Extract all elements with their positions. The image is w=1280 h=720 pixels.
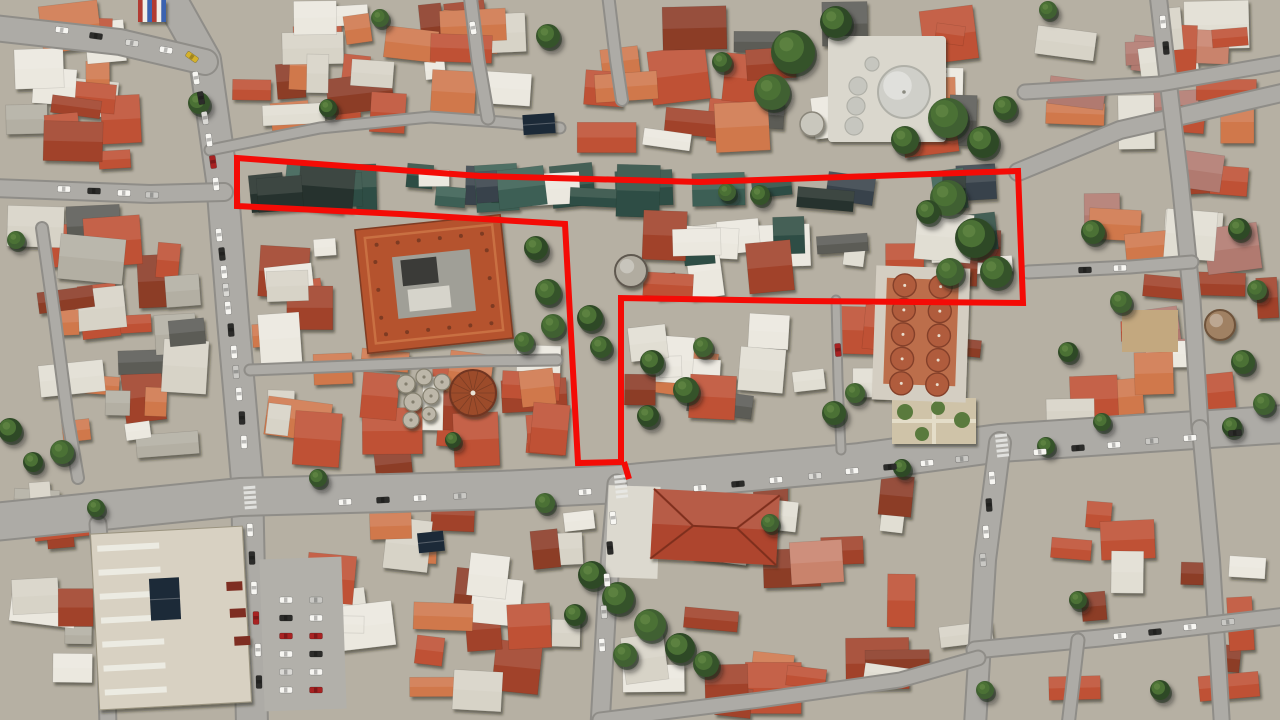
car [280,651,293,657]
building [563,510,595,532]
building [507,603,552,650]
building [65,626,92,644]
small-dome [849,77,867,95]
car [1183,623,1197,630]
car [310,687,323,693]
car [1078,267,1091,273]
car [413,495,426,502]
car [1159,15,1166,28]
car [1113,632,1127,639]
car [280,669,293,675]
car [808,472,821,479]
car [606,541,613,554]
car [845,467,858,474]
car [338,499,351,506]
building [413,602,473,631]
car [1113,265,1126,271]
car [1221,618,1235,625]
car [986,498,993,511]
parking-lot [259,557,346,712]
car [251,581,257,594]
car [310,597,323,603]
car [769,476,782,483]
car [310,633,323,639]
building [370,512,412,539]
car [241,435,247,448]
building [737,346,786,393]
turbe-dome [800,112,824,136]
car [601,605,608,618]
building [53,653,93,682]
car [280,615,293,621]
building [155,242,181,279]
car [249,551,255,564]
car [280,633,293,639]
car [145,192,158,198]
car [1107,442,1120,449]
car [1162,41,1169,54]
building [570,187,619,207]
car [231,345,238,358]
building [58,589,93,627]
car [453,493,466,500]
building [887,574,915,627]
building [297,163,356,212]
han-courtyard-building [355,215,513,354]
small-dome [847,97,865,115]
building [1181,562,1204,585]
striped-awning [138,0,166,22]
building [306,54,328,93]
car [87,188,100,194]
building [792,369,826,393]
car [280,597,293,603]
building [714,101,770,153]
car [609,511,616,525]
building [1228,556,1266,579]
car [1033,449,1046,456]
small-dome [845,117,863,135]
car [980,553,987,566]
car [215,228,222,242]
building [266,270,309,302]
building [168,318,206,347]
car [310,669,323,675]
building [662,6,727,51]
building [161,339,209,395]
building [748,313,790,350]
tomb-dome [1205,310,1235,340]
building [343,13,373,45]
building [360,372,400,421]
car [117,190,130,196]
car [310,651,323,657]
building [313,238,336,257]
building [745,240,794,294]
car [988,471,995,484]
building [452,669,503,711]
car [256,675,262,688]
car [310,615,323,621]
car [247,523,253,536]
building [495,165,547,209]
building [435,186,466,208]
building [518,368,556,408]
building [878,474,915,517]
building [98,149,131,169]
solar-panel [417,531,445,554]
car [233,365,240,378]
car [920,459,933,466]
car [883,463,896,470]
car [1228,430,1241,437]
building [257,312,302,365]
car [228,323,235,336]
building [430,69,477,114]
car [224,301,231,314]
building [350,59,394,89]
car [239,411,245,424]
building [789,539,844,585]
car [834,343,841,356]
car [218,247,225,261]
building [14,48,64,89]
building [1050,537,1092,561]
building [38,359,106,397]
building [616,164,661,217]
building [414,635,445,666]
car [220,265,227,279]
car [599,638,606,651]
car [1145,438,1158,445]
car [983,525,990,538]
building [11,577,59,614]
car [604,573,611,586]
building [643,272,694,298]
building [6,104,48,134]
tomb-dome [615,255,647,287]
school-building [650,489,779,565]
car [1183,435,1196,442]
building [624,374,655,405]
solar-panel [149,577,181,621]
car [578,489,591,496]
building [232,79,271,100]
car [255,643,261,656]
car [236,387,243,400]
small-dome [865,57,879,71]
street [0,188,224,194]
building [577,122,636,153]
car [1148,628,1162,635]
building [292,410,343,467]
building [293,1,336,35]
building [816,233,868,254]
building [466,552,510,599]
building [1204,372,1236,412]
building [530,529,561,570]
screenshot-root [0,0,1280,720]
building [265,403,291,436]
building [124,421,151,441]
building [164,274,201,308]
building [1134,352,1174,395]
dirt-lot [1122,310,1178,352]
car [212,177,219,191]
car [57,186,70,192]
car [280,687,293,693]
car [253,611,259,624]
car [1071,445,1084,452]
aerial-satellite-map [0,0,1280,720]
park [892,398,976,444]
building [57,233,126,284]
car [955,455,968,462]
building [43,121,103,162]
car [693,484,706,491]
car [376,497,389,504]
building [1111,551,1144,593]
solar-panel [522,113,555,135]
building [529,402,570,455]
building [105,390,130,416]
building [672,228,721,256]
building [1211,27,1248,48]
car [222,283,229,296]
car [731,480,744,487]
